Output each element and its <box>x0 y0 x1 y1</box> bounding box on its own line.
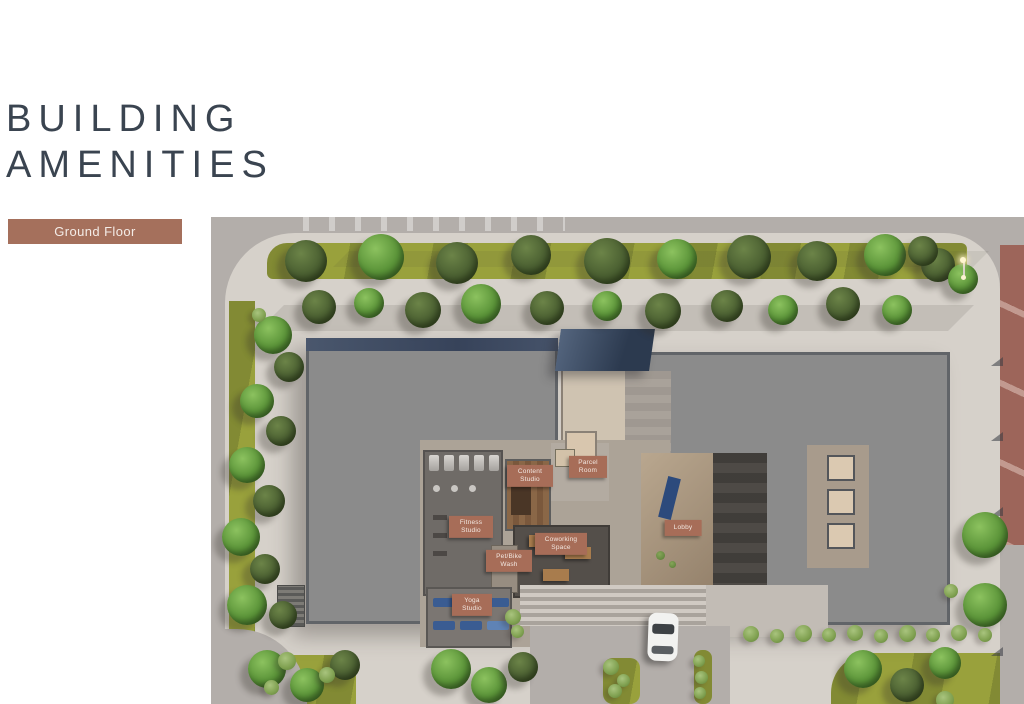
tree <box>405 292 441 328</box>
tree <box>358 234 404 280</box>
side-street <box>1000 245 1024 545</box>
amenity-label-pet-bike-wash[interactable]: Pet/Bike Wash <box>486 550 532 572</box>
tree <box>431 649 471 689</box>
coworking-table <box>543 569 569 581</box>
street-lamp-light <box>961 275 966 280</box>
shrub <box>608 684 622 698</box>
shrub <box>505 609 521 625</box>
gym-equipment <box>451 485 458 492</box>
tree <box>461 284 501 324</box>
tree <box>864 234 906 276</box>
yoga-mat <box>460 621 482 630</box>
tree <box>530 291 564 325</box>
page-title-line2: AMENITIES <box>6 142 274 188</box>
street-lamp-light <box>960 257 966 263</box>
tree <box>354 288 384 318</box>
terrace <box>827 523 855 549</box>
car <box>647 612 679 661</box>
planter <box>669 561 676 568</box>
shrub <box>693 655 705 667</box>
amenity-label-content-studio[interactable]: Content Studio <box>507 465 553 487</box>
tree <box>890 668 924 702</box>
terrace <box>827 455 855 481</box>
gym-equipment <box>474 455 484 471</box>
tree <box>768 295 798 325</box>
shrub <box>743 626 759 642</box>
gym-equipment <box>469 485 476 492</box>
tree <box>274 352 304 382</box>
shrub <box>694 687 706 699</box>
studio-desk <box>511 485 531 515</box>
gym-equipment <box>429 455 439 471</box>
shrub <box>319 667 335 683</box>
tree <box>645 293 681 329</box>
shrub <box>822 628 836 642</box>
shrub <box>944 584 958 598</box>
amenity-label-coworking-space[interactable]: Coworking Space <box>535 533 587 555</box>
gym-equipment <box>433 533 447 538</box>
ground-floor-tab[interactable]: Ground Floor <box>8 219 182 244</box>
page-title: BUILDING AMENITIES <box>6 96 274 188</box>
gym-equipment <box>433 515 447 520</box>
tree <box>592 291 622 321</box>
gym-equipment <box>433 551 447 556</box>
tree <box>285 240 327 282</box>
amenity-label-lobby[interactable]: Lobby <box>665 520 702 536</box>
tree <box>508 652 538 682</box>
shrub <box>951 625 967 641</box>
tree <box>229 447 265 483</box>
gym-equipment <box>489 455 499 471</box>
tree <box>882 295 912 325</box>
car-rear-window <box>651 646 673 655</box>
shrub <box>978 628 992 642</box>
canopy-edge <box>306 338 558 351</box>
site-plan-render: Content Studio Parcel Room Fitness Studi… <box>211 217 1024 704</box>
shrub <box>847 625 863 641</box>
tree <box>657 239 697 279</box>
amenity-label-yoga-studio[interactable]: Yoga Studio <box>452 594 492 616</box>
car-windshield <box>652 624 674 635</box>
shrub <box>874 629 888 643</box>
shrub <box>936 691 954 704</box>
shrub <box>278 652 296 670</box>
shrub <box>926 628 940 642</box>
tree <box>436 242 478 284</box>
tree <box>929 647 961 679</box>
shrub <box>264 680 279 695</box>
yoga-mat <box>433 621 455 630</box>
amenity-label-fitness-studio[interactable]: Fitness Studio <box>449 516 493 538</box>
tree <box>826 287 860 321</box>
tree <box>222 518 260 556</box>
crosswalk <box>303 217 565 231</box>
tree <box>240 384 274 418</box>
tree <box>584 238 630 284</box>
tree <box>471 667 507 703</box>
shrub <box>770 629 784 643</box>
tree <box>511 235 551 275</box>
shrub <box>603 659 619 675</box>
gym-equipment <box>444 455 454 471</box>
terrace <box>827 489 855 515</box>
shrub <box>695 671 708 684</box>
tree <box>253 485 285 517</box>
tree <box>227 585 267 625</box>
tree <box>250 554 280 584</box>
tree <box>963 583 1007 627</box>
tree <box>908 236 938 266</box>
planter <box>656 551 665 560</box>
gym-equipment <box>433 485 440 492</box>
shrub <box>252 308 266 322</box>
page-title-line1: BUILDING <box>6 96 274 142</box>
shrub <box>899 625 916 642</box>
amenity-label-parcel-room[interactable]: Parcel Room <box>569 456 607 478</box>
tree <box>844 650 882 688</box>
tree <box>962 512 1008 558</box>
tree <box>302 290 336 324</box>
shrub <box>511 625 524 638</box>
tree <box>711 290 743 322</box>
shrub <box>795 625 812 642</box>
gym-equipment <box>459 455 469 471</box>
entrance-canopy <box>555 329 655 371</box>
tree <box>269 601 297 629</box>
yoga-mat <box>487 621 509 630</box>
tree <box>797 241 837 281</box>
tree <box>727 235 771 279</box>
tree <box>266 416 296 446</box>
